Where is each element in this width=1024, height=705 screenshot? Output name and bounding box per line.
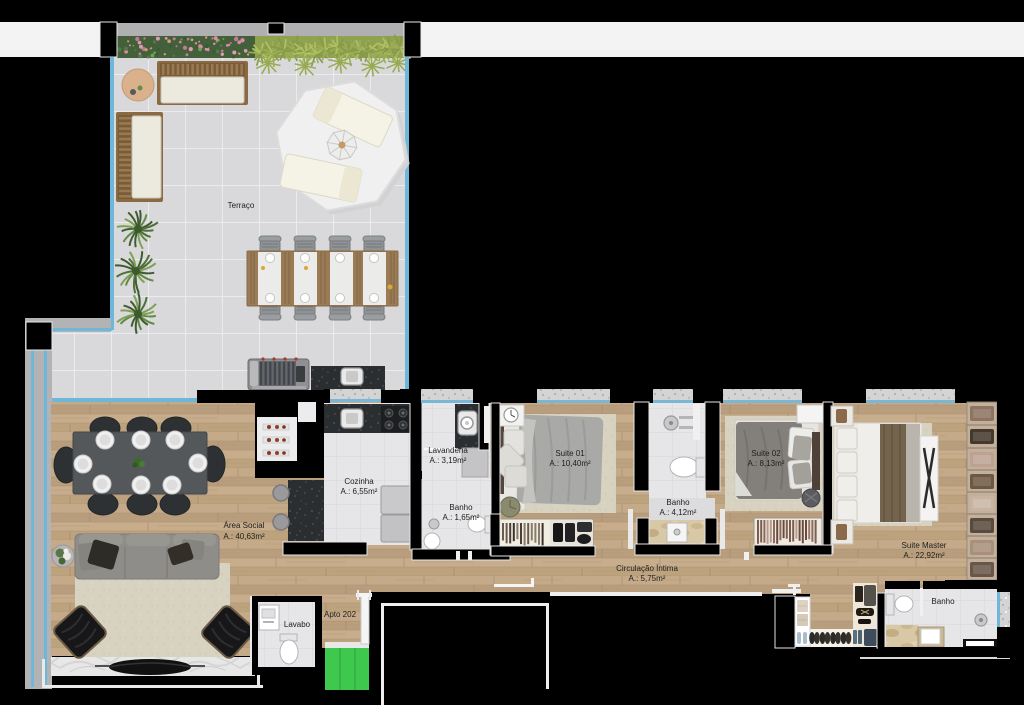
svg-text:Suite Master: Suite Master [902,541,947,550]
svg-text:Terraço: Terraço [228,201,255,210]
svg-text:Apto 202: Apto 202 [324,610,357,619]
svg-text:A.: 4,12m²: A.: 4,12m² [660,508,697,517]
svg-text:A.: 10,40m²: A.: 10,40m² [549,459,591,468]
svg-text:A.: 3,19m²: A.: 3,19m² [430,456,467,465]
svg-text:Área Social: Área Social [224,521,265,530]
svg-text:Banho: Banho [666,498,690,507]
svg-text:Circulação Íntima: Circulação Íntima [616,564,678,573]
svg-text:A.: 8,13m²: A.: 8,13m² [748,459,785,468]
svg-text:A.: 22,92m²: A.: 22,92m² [903,551,945,560]
svg-text:A.: 1,65m²: A.: 1,65m² [443,513,480,522]
svg-text:A.: 5,75m²: A.: 5,75m² [629,574,666,583]
svg-text:Cozinha: Cozinha [344,477,374,486]
svg-text:Lavabo: Lavabo [284,620,311,629]
svg-text:Suite 01: Suite 01 [555,449,585,458]
svg-text:Lavanderia: Lavanderia [428,446,468,455]
svg-text:Banho: Banho [449,503,473,512]
svg-text:A.: 40,63m²: A.: 40,63m² [223,532,265,541]
svg-text:Banho: Banho [931,597,955,606]
svg-text:A.: 6,55m²: A.: 6,55m² [341,487,378,496]
svg-text:Suite 02: Suite 02 [751,449,781,458]
